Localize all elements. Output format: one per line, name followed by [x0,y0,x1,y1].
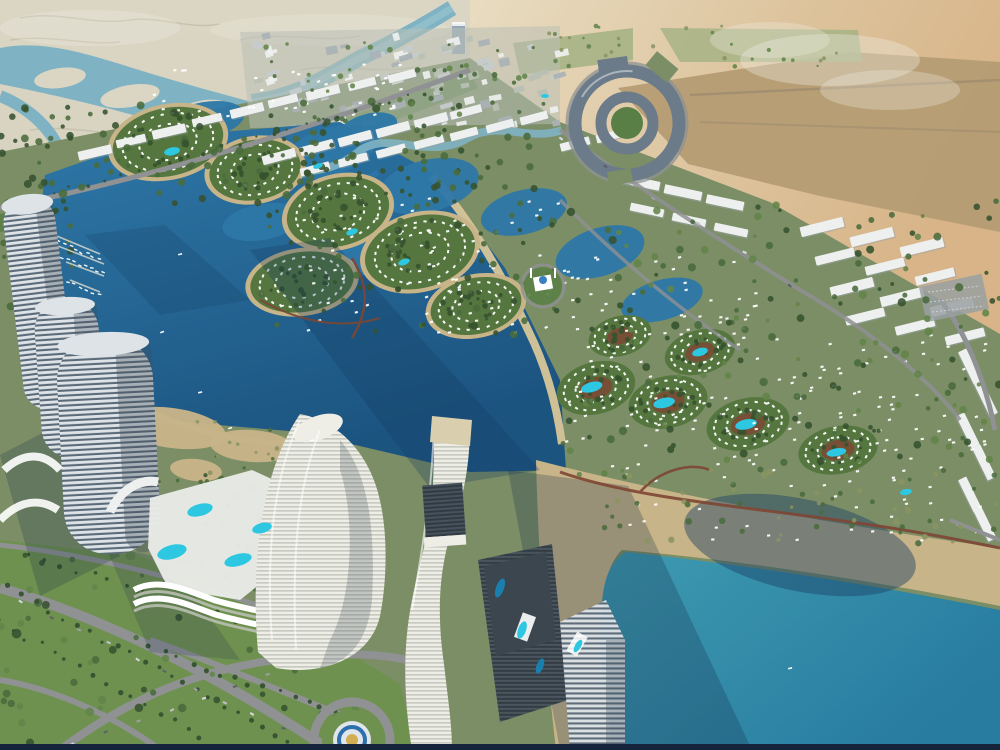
tree [680,491,684,495]
tree [178,704,187,713]
tree [59,189,68,198]
tree [905,506,908,509]
bottom-border-bar [0,744,1000,750]
tree [45,144,50,149]
tree [216,454,219,457]
tree [348,68,351,71]
tree [893,518,900,525]
tree [141,687,147,693]
tree [398,165,404,171]
tree [855,250,862,257]
tree [582,37,584,39]
tree [722,361,727,366]
tree [273,74,277,78]
tree [867,358,873,364]
tree [553,32,557,36]
tree [452,199,456,203]
tree [777,538,781,542]
palm-tree [86,184,90,188]
tree [762,393,770,401]
tree [737,501,743,507]
tree [926,406,931,411]
villa [576,328,579,330]
tree [783,227,789,233]
tree [470,183,477,190]
villa [624,318,627,320]
tree [792,416,798,422]
tree [228,441,232,445]
villa [713,426,715,429]
tree [644,538,650,544]
tree [473,305,480,312]
mosque-dome [539,276,547,284]
tree [504,134,511,141]
tree [37,161,41,165]
tree [910,230,916,236]
villa [775,338,778,340]
villa [902,470,905,472]
tree [628,327,634,333]
tree [706,402,712,408]
tree [273,127,280,134]
tree [268,428,272,432]
tree [259,172,266,179]
tree [449,184,456,191]
tree [336,253,342,259]
tree [49,114,55,120]
villa [419,232,422,234]
villa [248,106,251,109]
palm-tree [260,683,265,688]
tree [475,154,479,158]
villa [699,400,701,403]
tree [553,59,558,64]
tree [738,357,744,363]
tree [779,533,782,536]
tree [181,140,189,148]
tree [340,204,347,211]
villa [254,77,257,79]
tree [931,436,939,444]
tree [510,331,517,338]
tree [307,80,310,83]
tree [274,322,279,327]
tree [368,45,373,50]
tree [61,637,68,644]
palm-tree [423,93,427,97]
tree [955,283,963,291]
tree [684,26,688,30]
tree [198,480,202,484]
tree [766,242,773,249]
tree [895,402,901,408]
palm-tree [46,610,50,614]
tree [755,204,760,209]
villa [850,528,853,530]
villa [632,293,635,296]
palm-tree [61,618,64,621]
villa [884,356,887,358]
tree [719,518,725,524]
tower-dark-roof [484,552,556,656]
tree [790,506,793,509]
tree [199,195,206,202]
tree [281,153,285,157]
tree [586,44,591,49]
tree [270,154,274,158]
tree [174,112,179,117]
villa [789,485,792,487]
tree [554,308,560,314]
tree [384,192,388,196]
tree [616,230,622,236]
palm-tree [173,717,177,721]
tree [333,159,338,164]
tree [836,386,841,391]
tree [304,170,310,176]
tree [750,441,754,445]
tree [443,68,447,72]
villa [589,293,592,295]
villa [737,343,740,345]
tree [254,199,261,206]
tree [485,165,490,170]
palm-tree [316,704,321,709]
tree [2,255,6,259]
palm-tree [192,662,197,667]
aerial-render-image [0,0,1000,750]
tree [849,523,854,528]
tree [923,277,928,282]
tree [421,166,427,172]
tree [70,679,77,686]
tree [26,616,31,621]
tree [561,441,566,446]
tree [624,244,628,248]
tree [329,104,333,108]
tree [492,72,498,78]
tree [813,451,817,455]
haze [710,22,830,58]
tree [516,75,522,81]
tree [559,48,563,52]
minaret [530,268,532,278]
tree [898,531,902,535]
villa [693,419,696,421]
tree [521,317,528,324]
tree [924,315,931,322]
tree [922,534,928,540]
tree [791,58,795,62]
tree [460,64,464,68]
tree [222,174,226,178]
tree [458,147,464,153]
palm-tree [88,629,92,633]
tree [933,472,938,477]
tree [751,58,754,61]
tree [297,178,304,185]
villa [921,438,924,440]
tree [982,309,989,316]
tree [326,89,330,93]
tree [523,133,530,140]
tree [740,450,748,458]
tree [333,280,337,284]
tree [395,237,401,243]
tree [668,537,674,543]
tree [782,57,786,61]
tree [972,487,976,491]
tree [63,207,68,212]
tree [604,54,608,58]
tree [322,122,327,127]
tree [24,143,28,147]
tree [898,298,906,306]
villa [438,309,440,312]
tree [255,451,258,454]
tree [948,382,956,390]
tree [440,152,448,160]
tree [651,44,655,48]
tree [41,179,48,186]
villa [477,281,480,283]
tree [275,446,280,451]
tree [282,435,285,438]
tree [833,430,837,434]
tree [532,46,535,49]
tree [856,458,861,463]
tree [283,191,291,199]
villa [466,329,469,331]
villa [698,369,701,371]
villa [168,123,171,125]
tree [605,227,612,234]
tree [852,286,858,292]
tree [317,118,321,122]
tree [648,282,654,288]
tree [287,183,293,189]
tower-right [560,600,625,750]
villa [447,250,449,253]
tree [85,707,94,716]
tree [502,184,508,190]
tree [343,119,348,124]
tree [934,397,938,401]
tree [478,175,483,180]
palm-tree [103,180,106,183]
screenshot-root [0,0,1000,750]
villa [212,137,214,140]
villa [563,392,565,395]
villa [655,429,658,431]
villa [680,314,683,316]
villa [754,292,757,294]
tree [927,519,932,524]
tree [432,68,436,72]
palm-tree [12,629,15,632]
tree [133,635,138,640]
tree [924,327,932,335]
tree [977,382,981,386]
tree [605,504,609,508]
tree [816,65,818,67]
tree [208,470,213,475]
villa [296,211,298,214]
tree [17,703,24,710]
tree [104,157,110,163]
tree [321,309,325,313]
villa [699,332,702,334]
palm-tree [143,703,146,706]
tree [8,700,15,707]
tree [651,253,658,260]
tree [321,188,328,195]
tree [447,65,453,71]
palm-tree [138,169,141,172]
tree [660,263,666,269]
tree [310,129,316,135]
tree [518,228,522,232]
tree [402,148,408,154]
villa [983,440,986,442]
villa [909,457,912,460]
tree [617,302,623,308]
tree [155,172,160,177]
palm-tree [372,103,374,105]
tree [65,115,70,120]
tree [802,372,807,377]
palm-tree [174,655,177,658]
tree [897,453,903,459]
villa [765,440,768,442]
palm-tree [272,733,277,738]
tree [754,213,762,221]
tree [313,183,318,188]
tower-s-louvers [422,483,466,538]
tree [915,540,921,546]
tree [814,491,819,496]
tree [989,298,995,304]
tree [61,124,65,128]
tree [88,660,93,665]
palm-tree [118,690,123,695]
villa [451,306,453,309]
villa [711,538,714,540]
tree [615,274,622,281]
villa [423,220,426,222]
tree [78,183,85,190]
villa [780,422,782,425]
tree [455,282,460,287]
tree [870,499,875,504]
tree [112,122,119,129]
minaret [554,268,556,278]
tree [644,480,648,484]
tree [734,308,739,313]
villa [715,526,718,528]
tree [511,298,517,304]
tree [349,153,354,158]
complex-courtyard [611,107,643,139]
tree [487,313,491,317]
tree [731,487,736,492]
tree [991,526,997,532]
palm-tree [180,680,185,685]
tree [951,540,954,543]
tree [933,233,941,241]
tree [442,128,446,132]
tree [568,36,571,39]
tree [88,112,93,117]
tree [817,501,821,505]
tree [162,655,169,662]
tree [320,129,327,136]
haze [820,70,960,110]
tree [662,422,667,427]
villa [755,428,758,430]
tree [749,255,757,263]
tree [307,73,311,77]
tree [959,406,966,413]
tree [456,259,460,263]
villa [664,379,667,381]
tree [640,289,646,295]
tree [203,473,207,477]
tree [457,310,462,315]
tree [741,326,748,333]
tree [685,501,691,507]
tree [189,162,195,168]
tree [213,697,220,704]
tree [617,37,621,41]
villa [418,281,421,283]
villa [297,73,300,75]
tree [521,241,526,246]
tree [709,468,714,473]
mosque-landmark [522,265,564,307]
tree [301,160,308,167]
tree [832,294,837,299]
palm-tree [168,161,172,165]
tree [930,358,934,362]
palm-tree [354,109,358,113]
tree [310,88,314,92]
tree [429,218,434,223]
tree [700,372,707,379]
palm-tree [273,133,276,136]
tree [726,320,732,326]
tree [236,147,244,155]
palm-tree [305,122,307,124]
tree [538,216,542,220]
tree [305,183,311,189]
tower-s-roof [430,416,472,446]
palm-tree [407,94,409,96]
villa [642,520,645,522]
villa [644,444,647,446]
tree [986,215,992,221]
tree [852,518,857,523]
tree [733,64,738,69]
tree [648,418,653,423]
palm-tree [322,118,324,120]
tree [13,139,17,143]
palm-tree [159,712,164,717]
tree [567,208,575,216]
tree [242,182,248,188]
tree [302,211,306,215]
palm-tree [158,665,162,669]
